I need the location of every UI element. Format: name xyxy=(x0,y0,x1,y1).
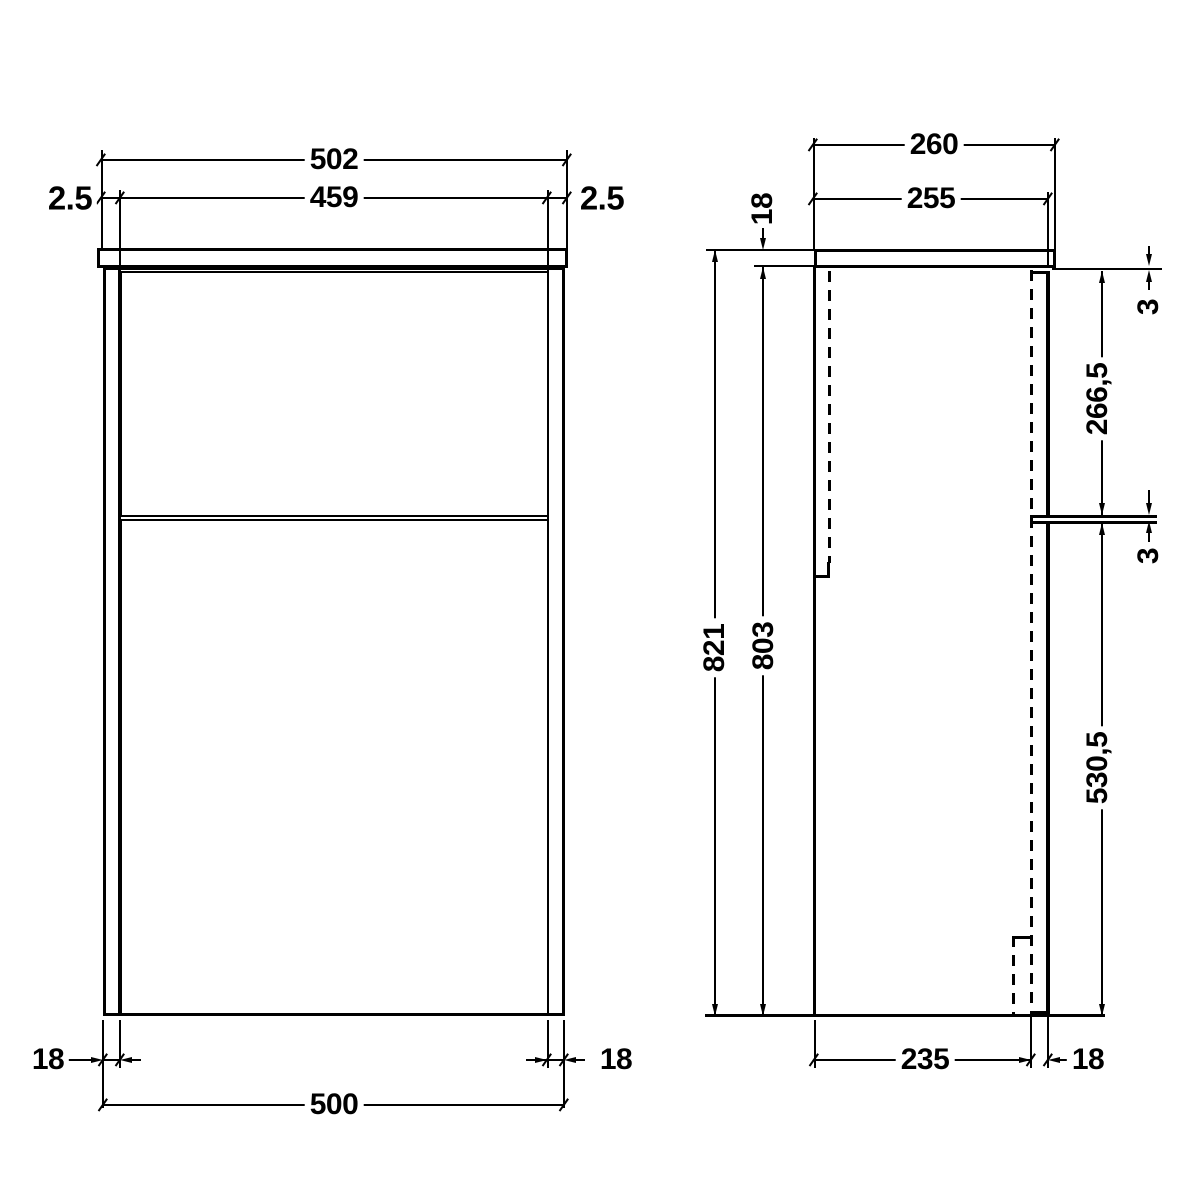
extension-line xyxy=(102,1020,104,1108)
dim-arrow xyxy=(1146,254,1152,266)
dim-arrow xyxy=(1099,271,1105,283)
dim-arrow xyxy=(760,1004,766,1016)
dim-arrow xyxy=(760,238,766,250)
dim-door-width-label: 459 xyxy=(305,181,364,215)
dim-gap-left-label: 2.5 xyxy=(43,180,97,217)
front-upper-door-outline xyxy=(120,271,549,517)
extension-line xyxy=(119,190,121,268)
dim-arrow xyxy=(1099,1004,1105,1016)
dim-door-thickness-label: 18 xyxy=(1067,1043,1109,1077)
dim-overall-depth-label: 260 xyxy=(905,128,964,162)
dim-mid-gap-label: 3 xyxy=(1132,543,1166,569)
dim-arrow xyxy=(1146,270,1152,282)
dim-overall-width-label: 502 xyxy=(305,143,364,177)
front-worktop-outline xyxy=(97,248,568,268)
dim-upper-door-height-label: 266,5 xyxy=(1081,358,1115,441)
dim-line-worktop-thickness xyxy=(762,228,764,238)
dim-line-mid-gap xyxy=(1148,490,1150,503)
dim-side-right-label: 18 xyxy=(595,1043,637,1077)
dim-line-mid-gap xyxy=(1148,533,1150,542)
dim-arrow xyxy=(1019,1057,1031,1063)
dim-arrow xyxy=(760,267,766,279)
dim-line-top-gap xyxy=(1148,282,1150,290)
side-lower-door-face xyxy=(1046,521,1050,1013)
dim-carcass-height-label: 803 xyxy=(747,617,781,676)
dim-arrow xyxy=(712,1004,718,1016)
technical-drawing-canvas: 502 2.5 459 2.5 18 18 xyxy=(0,0,1200,1200)
dim-worktop-thickness-label: 18 xyxy=(746,188,780,230)
side-service-notch-hidden-line xyxy=(1012,936,1015,1014)
dim-line-side-right xyxy=(576,1059,585,1061)
side-back-rail-step-edge xyxy=(827,562,830,577)
extension-line xyxy=(1047,192,1049,268)
dim-line-side-left xyxy=(132,1059,141,1061)
dim-top-gap-label: 3 xyxy=(1132,294,1166,320)
side-upper-door-face xyxy=(1046,271,1050,517)
dim-side-left-label: 18 xyxy=(27,1043,69,1077)
dim-gap-right-label: 2.5 xyxy=(575,180,629,217)
side-carcass-front-hidden-line xyxy=(1030,270,1033,1014)
dim-line-top-gap xyxy=(1148,246,1150,254)
dim-base-depth-label: 235 xyxy=(896,1043,955,1077)
dim-carcass-depth-label: 255 xyxy=(902,182,961,216)
side-worktop-outline xyxy=(814,249,1056,268)
dim-carcass-width-label: 500 xyxy=(305,1088,364,1122)
extension-line xyxy=(1054,138,1056,249)
extension-line xyxy=(563,1020,565,1108)
dim-arrow xyxy=(1099,523,1105,535)
dim-overall-height-label: 821 xyxy=(698,619,732,678)
side-back-hidden-line xyxy=(828,271,831,563)
side-service-notch-top xyxy=(1012,936,1032,939)
dim-arrow xyxy=(1146,503,1152,515)
side-back-panel-line xyxy=(813,267,816,1016)
side-door-gap-upper-line xyxy=(1030,515,1157,518)
dim-arrow xyxy=(1146,521,1152,533)
dim-lower-door-height-label: 530,5 xyxy=(1081,727,1115,810)
dim-arrow xyxy=(1099,503,1105,515)
extension-line xyxy=(547,190,549,268)
front-lower-door-outline xyxy=(120,519,549,1015)
dim-arrow xyxy=(712,250,718,262)
